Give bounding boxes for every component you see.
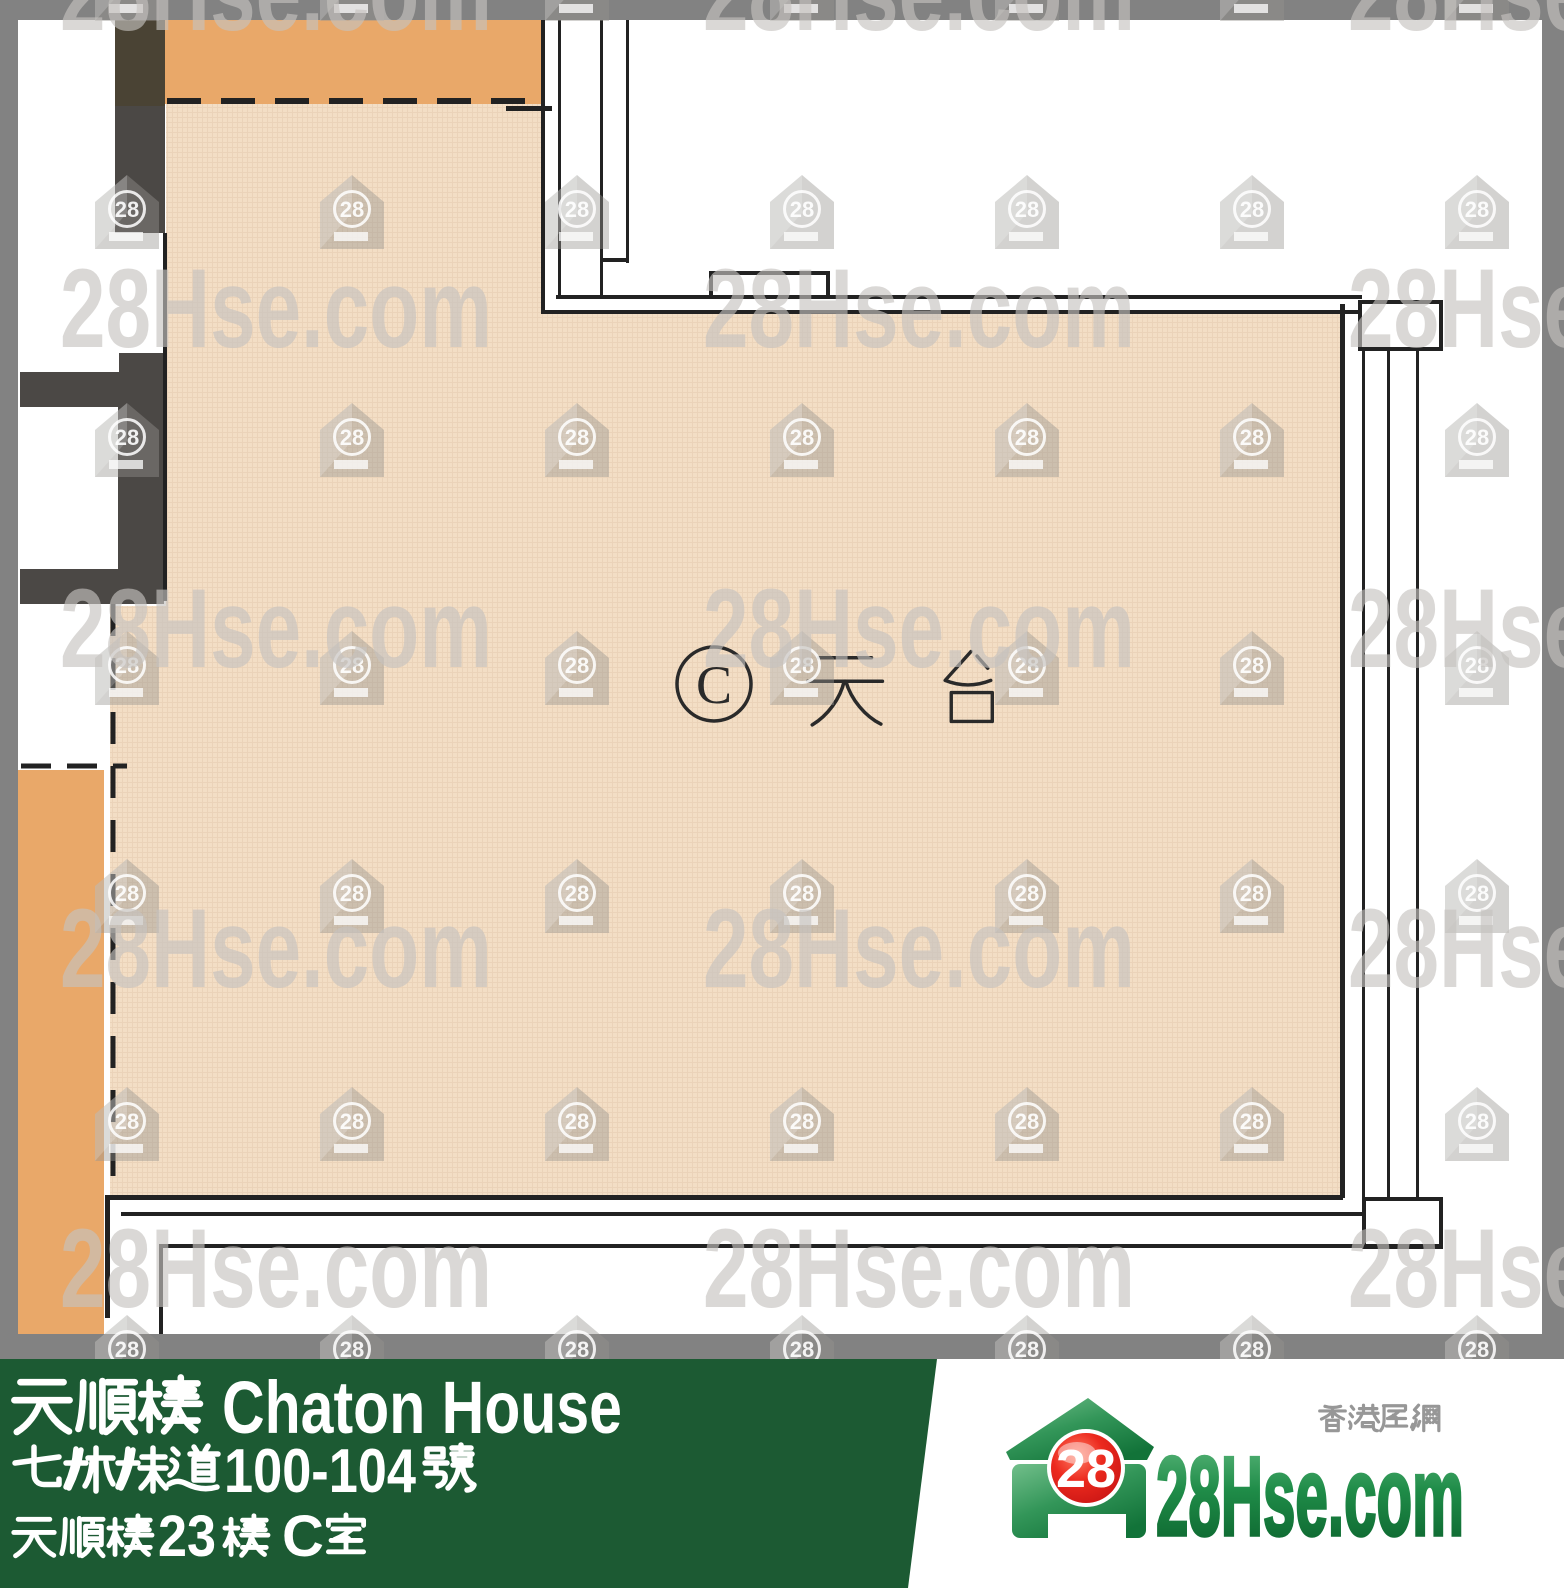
svg-text:28Hse.com: 28Hse.com <box>703 0 1135 54</box>
svg-text:28Hse.com: 28Hse.com <box>703 1206 1135 1331</box>
svg-text:23: 23 <box>158 1504 216 1569</box>
svg-text:28Hse.com: 28Hse.com <box>703 246 1135 371</box>
svg-text:28Hse.com: 28Hse.com <box>1348 886 1564 1011</box>
svg-text:28Hse.com: 28Hse.com <box>1348 1206 1564 1331</box>
svg-text:28Hse.com: 28Hse.com <box>1348 0 1564 54</box>
svg-text:28Hse.com: 28Hse.com <box>60 566 492 691</box>
svg-text:28Hse.com: 28Hse.com <box>60 0 492 54</box>
svg-text:28: 28 <box>1056 1439 1116 1499</box>
svg-text:100-104: 100-104 <box>224 1437 416 1506</box>
svg-text:28Hse.com: 28Hse.com <box>1348 246 1564 371</box>
svg-text:28Hse.com: 28Hse.com <box>703 886 1135 1011</box>
svg-text:28Hse.com: 28Hse.com <box>60 886 492 1011</box>
svg-text:28Hse.com: 28Hse.com <box>60 246 492 371</box>
svg-text:C: C <box>282 1504 324 1569</box>
svg-text:28Hse.com: 28Hse.com <box>60 1206 492 1331</box>
svg-text:28Hse.com: 28Hse.com <box>1348 566 1564 691</box>
svg-text:28Hse.com: 28Hse.com <box>1156 1434 1464 1559</box>
svg-text:28Hse.com: 28Hse.com <box>703 566 1135 691</box>
